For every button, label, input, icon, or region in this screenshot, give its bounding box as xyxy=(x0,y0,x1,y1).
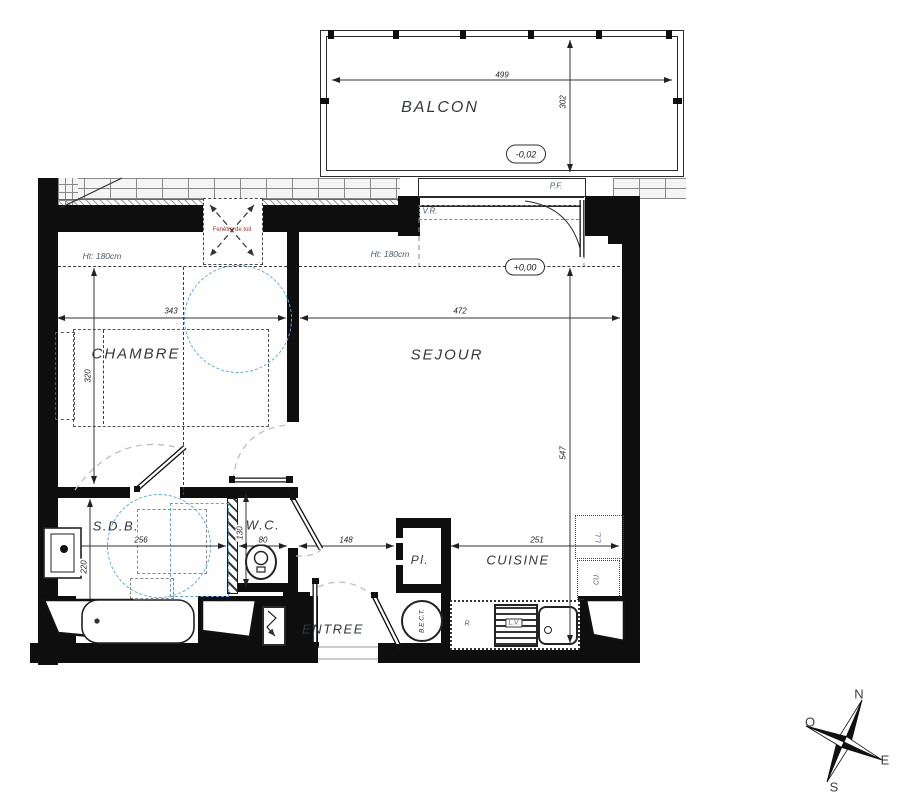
dim-wc-depth: 130 xyxy=(236,524,245,541)
room-label-wc: W.C. xyxy=(246,518,280,533)
dim-balcony-depth: 302 xyxy=(559,93,568,110)
wall-left xyxy=(38,178,58,665)
room-label-balcon: BALCON xyxy=(401,99,479,117)
wall-corner-tr xyxy=(608,196,640,244)
compass-letter-e: E xyxy=(881,753,890,768)
label-cooker: CU. xyxy=(594,573,601,585)
roller-shutter-vr-box xyxy=(419,205,584,220)
opening-dashes xyxy=(419,218,584,266)
entree-threshold xyxy=(318,647,378,659)
railing-post xyxy=(460,30,466,39)
wardrobe-outline xyxy=(55,332,75,420)
compass-rose xyxy=(806,700,882,782)
room-label-cuisine: CUISINE xyxy=(486,553,549,568)
label-roof-window: Fenêtre de toit xyxy=(213,227,252,233)
compass-letter-o: O xyxy=(805,715,815,730)
dim-sejour-width: 472 xyxy=(451,307,468,316)
dim-balcony-width: 499 xyxy=(493,71,510,80)
wall-placard-left xyxy=(396,518,403,593)
wall-wc-ledge xyxy=(238,583,298,592)
room-label-entree: ENTREE xyxy=(302,622,364,637)
dim-sdb-width: 256 xyxy=(132,536,149,545)
room-label-sejour: SEJOUR xyxy=(411,347,484,364)
dim-sdb-depth: 220 xyxy=(80,558,89,575)
railing-post xyxy=(320,98,329,104)
kitchen-sink xyxy=(538,606,578,645)
tub-recess xyxy=(76,596,198,643)
railing-post xyxy=(596,30,602,39)
placard-louver-gap xyxy=(396,538,403,543)
kitchen-sink-drain xyxy=(544,626,552,634)
brick-band-top-left xyxy=(58,178,400,199)
label-washing-machine: L.L. xyxy=(596,531,603,543)
dim-entree-width: 148 xyxy=(337,536,354,545)
clearance-rect-sdb xyxy=(170,503,229,597)
wall-top-a xyxy=(55,205,203,232)
label-ht-left: Ht: 180cm xyxy=(83,251,122,261)
railing-post xyxy=(673,98,682,104)
wall-top-b xyxy=(260,205,400,232)
label-water-heater: B.E.C.T. xyxy=(419,609,426,633)
compass-letter-n: N xyxy=(854,687,863,702)
wall-sdb-top-b xyxy=(180,487,298,498)
wall-bottom-a xyxy=(30,643,318,663)
railing-post xyxy=(666,30,672,39)
clearance-circle-chambre xyxy=(184,265,292,373)
room-label-placard: Pl. xyxy=(411,553,430,567)
wall-sdb-top-a xyxy=(55,487,130,498)
bed-pillow-line xyxy=(103,330,104,424)
balcony-railing-inner xyxy=(326,36,678,171)
placard-louver-gap xyxy=(396,560,403,565)
label-dishwasher: L.V. xyxy=(505,619,522,628)
label-vr: V.R. xyxy=(423,207,438,216)
electric-panel xyxy=(262,606,286,646)
height-limit-line-right xyxy=(299,266,620,267)
dim-wc-width: 80 xyxy=(257,536,270,545)
level-badge-balcony: -0,02 xyxy=(506,145,546,164)
railing-post xyxy=(328,30,334,39)
label-pf: P.F. xyxy=(550,182,563,191)
dim-chambre-depth: 320 xyxy=(84,367,93,384)
level-badge-interior: +0,00 xyxy=(505,259,545,276)
wall-pier-left xyxy=(398,196,420,236)
compass-letter-s: S xyxy=(830,780,839,795)
floor-plan: BALCON CHAMBRE SEJOUR S.D.B. W.C. ENTREE… xyxy=(0,0,918,800)
label-ht-right: Ht: 180cm xyxy=(371,249,410,259)
railing-post xyxy=(528,30,534,39)
dim-chambre-width: 343 xyxy=(162,307,179,316)
label-refrigerator: R. xyxy=(465,621,472,628)
wall-kitchen-corner xyxy=(578,596,640,645)
dim-cuisine-width: 251 xyxy=(528,536,545,545)
room-label-chambre: CHAMBRE xyxy=(91,346,180,363)
dim-sejour-depth: 547 xyxy=(559,444,568,461)
railing-post xyxy=(393,30,399,39)
room-label-sdb: S.D.B. xyxy=(93,519,140,534)
